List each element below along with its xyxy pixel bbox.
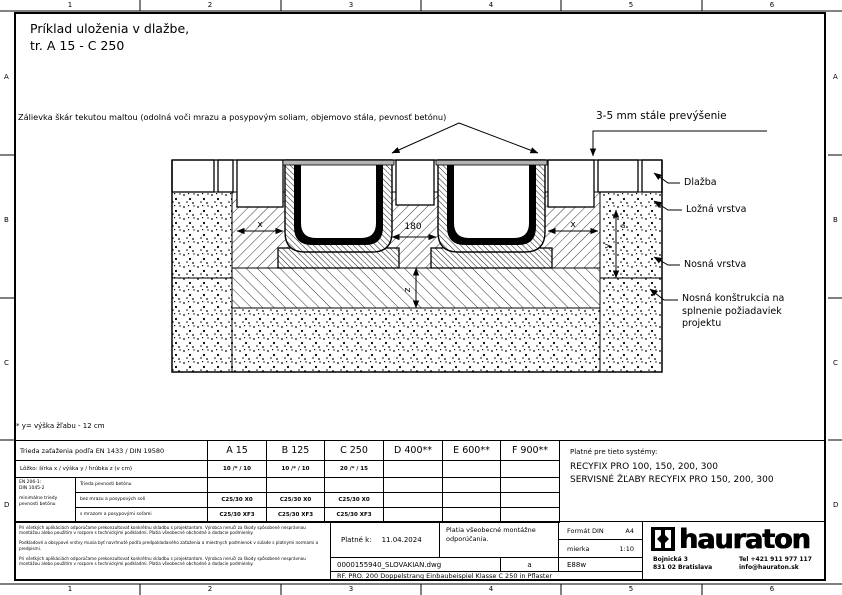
- brand-block: hauraton Bojnická 3 831 02 Bratislava Te…: [642, 521, 826, 581]
- label-base-layer: Nosná vrstva: [684, 259, 746, 270]
- brand-email: info@hauraton.sk: [739, 564, 812, 572]
- concrete-row1-label: Trieda pevnosti betónu: [75, 477, 208, 493]
- left-grating-strip: [283, 160, 394, 165]
- disclaimer-2: Podkladové a obsypové vrstvy musia byť n…: [19, 540, 326, 550]
- ruler-col-6: 6: [770, 1, 774, 9]
- class-e600: E 600**: [442, 440, 501, 461]
- row1-b125: [266, 477, 325, 493]
- ruler-col-4b: 4: [489, 585, 493, 593]
- ruler-col-3: 3: [349, 1, 353, 9]
- class-f900: F 900**: [500, 440, 560, 461]
- row2-c250: C25/30 X0: [324, 492, 384, 508]
- dim-x-right: x: [570, 220, 576, 230]
- bed-d400: [383, 460, 443, 478]
- bed-label-cell: Lôžko: šírka x / výška y / hrúbka z (v c…: [14, 460, 208, 478]
- ruler-col-1b: 1: [68, 585, 72, 593]
- scale-cell: mierka 1:10: [558, 539, 643, 558]
- row2-f900: [500, 492, 560, 508]
- drawing-sheet: x 180 x y z a 1 2 3 4 5 6 1 2 3 4 5 6 A …: [0, 0, 842, 595]
- brand-address-line1: Bojnická 3: [653, 556, 739, 564]
- dim-180: 180: [404, 222, 421, 232]
- label-supporting-structure: Nosná konštrukcia na splnenie požiadavie…: [682, 293, 822, 331]
- format-value: A4: [625, 527, 634, 535]
- concrete-row2-label: bez mrazu a posypových solí: [75, 492, 208, 508]
- grout-annotation: Zálievka škár tekutou maltou (odolná voč…: [18, 112, 446, 122]
- load-class-label-cell: Trieda zaťaženia podľa EN 1433 / DIN 195…: [14, 440, 208, 461]
- bed-c250: 20 /* / 15: [324, 460, 384, 478]
- scale-value: 1:10: [619, 545, 634, 553]
- bed-a15: 10 /* / 10: [207, 460, 267, 478]
- dim-z: z: [403, 287, 413, 292]
- concrete-norm-line3: minimálne triedy pevnosti betónu: [19, 496, 75, 507]
- cross-section: [172, 160, 662, 372]
- row2-b125: C25/30 X0: [266, 492, 325, 508]
- row2-d400: [383, 492, 443, 508]
- bed-f900: [500, 460, 560, 478]
- scale-label: mierka: [567, 545, 589, 553]
- disclaimer-block: Pri všetkých aplikáciách odporúčame prek…: [14, 521, 331, 581]
- dim-x-left: x: [257, 220, 263, 230]
- ruler-row-a: A: [4, 73, 9, 81]
- brand-wordmark: hauraton: [679, 526, 810, 553]
- label-paving: Dlažba: [684, 177, 717, 188]
- subgrade: [232, 308, 600, 372]
- drawing-title-line1: Príklad uloženia v dlažbe,: [30, 20, 189, 37]
- footnote: * y= výška žľabu - 12 cm: [16, 422, 105, 430]
- row2-a15: C25/30 X0: [207, 492, 267, 508]
- ruler-row-d: D: [4, 501, 9, 509]
- right-grating-strip: [436, 160, 547, 165]
- systems-line1: RECYFIX PRO 100, 150, 200, 300: [570, 462, 718, 472]
- dim-y: y: [603, 243, 613, 249]
- class-a15: A 15: [207, 440, 267, 461]
- row1-d400: [383, 477, 443, 493]
- ruler-row-b2: B: [833, 216, 838, 224]
- revision-cell: a: [500, 557, 559, 572]
- ruler-row-d2: D: [833, 501, 838, 509]
- mounting-note-cell: Platia všeobecné montážne odporúčania.: [439, 521, 559, 558]
- bed-e600: [442, 460, 501, 478]
- concrete-norm-line2: DIN 1045-2: [19, 486, 45, 492]
- right-channel-interior: [454, 160, 529, 238]
- class-b125: B 125: [266, 440, 325, 461]
- format-cell: Formát DIN A4: [558, 521, 643, 540]
- row1-e600: [442, 477, 501, 493]
- ruler-col-2b: 2: [208, 585, 212, 593]
- brand-phone: Tel +421 911 977 117: [739, 556, 812, 564]
- drawing-title: Príklad uloženia v dlažbe, tr. A 15 - C …: [30, 20, 189, 54]
- brand-address-line2: 831 02 Bratislava: [653, 564, 739, 572]
- ruler-row-a2: A: [833, 73, 838, 81]
- ruler-col-3b: 3: [349, 585, 353, 593]
- systems-line2: SERVISNÉ ŽĽABY RECYFIX PRO 150, 200, 300: [570, 475, 774, 485]
- disclaimer-1: Pri všetkých aplikáciách odporúčame prek…: [19, 525, 326, 535]
- code-cell: E88w: [558, 557, 643, 572]
- row2-e600: [442, 492, 501, 508]
- overfill-annotation: 3-5 mm stále prevýšenie: [596, 110, 727, 122]
- ruler-col-2: 2: [208, 1, 212, 9]
- filename-cell: 0000155940_SLOVAKIAN.dwg: [330, 557, 501, 572]
- valid-date-label: Platné k:: [341, 536, 372, 544]
- ruler-row-c2: C: [833, 359, 838, 367]
- ruler-col-1: 1: [68, 1, 72, 9]
- drawing-title-line2: tr. A 15 - C 250: [30, 37, 189, 54]
- valid-date-cell: Platné k: 11.04.2024: [330, 521, 440, 558]
- class-d400: D 400**: [383, 440, 443, 461]
- concrete-left: [172, 192, 232, 372]
- ruler-row-c: C: [4, 359, 9, 367]
- ruler-col-6b: 6: [770, 585, 774, 593]
- bed-b125: 10 /* / 10: [266, 460, 325, 478]
- hauraton-logo-icon: [651, 527, 675, 551]
- left-channel-interior: [301, 160, 376, 238]
- format-label: Formát DIN: [567, 527, 604, 535]
- class-c250: C 250: [324, 440, 384, 461]
- dim-a: a: [621, 222, 625, 230]
- ruler-col-5b: 5: [629, 585, 633, 593]
- concrete-norm-cell: EN 206-1: DIN 1045-2 minimálne triedy pe…: [14, 477, 76, 523]
- ruler-col-5: 5: [629, 1, 633, 9]
- row1-f900: [500, 477, 560, 493]
- systems-intro: Platné pre tieto systémy:: [570, 448, 657, 456]
- ruler-col-4: 4: [489, 1, 493, 9]
- description-cell: RF. PRO. 200 Doppelstrang Einbaubeispiel…: [330, 571, 643, 581]
- valid-date-value: 11.04.2024: [382, 536, 422, 544]
- disclaimer-3: Pri všetkých aplikáciách odporúčame prek…: [19, 556, 326, 566]
- concrete-right: [600, 192, 662, 372]
- row1-a15: [207, 477, 267, 493]
- systems-box: Platné pre tieto systémy: RECYFIX PRO 10…: [559, 440, 826, 522]
- label-bedding-layer: Ložná vrstva: [686, 204, 746, 215]
- ruler-row-b: B: [4, 216, 9, 224]
- row1-c250: [324, 477, 384, 493]
